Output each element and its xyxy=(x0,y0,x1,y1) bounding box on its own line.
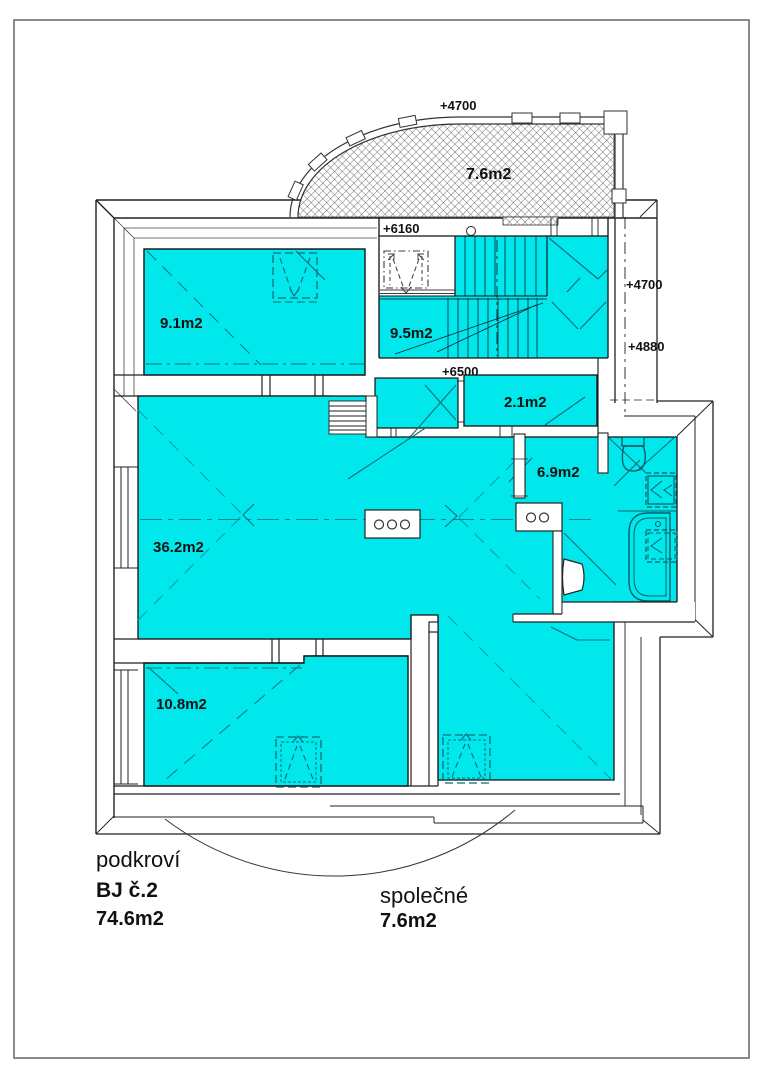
svg-text:+6160: +6160 xyxy=(383,221,420,236)
svg-text:+4700: +4700 xyxy=(626,277,663,292)
svg-text:6.9m2: 6.9m2 xyxy=(537,464,580,481)
svg-text:36.2m2: 36.2m2 xyxy=(153,539,204,556)
svg-text:7.6m2: 7.6m2 xyxy=(380,910,437,932)
svg-text:9.1m2: 9.1m2 xyxy=(160,315,203,332)
svg-text:2.1m2: 2.1m2 xyxy=(504,394,547,411)
svg-text:10.8m2: 10.8m2 xyxy=(156,696,207,713)
svg-text:74.6m2: 74.6m2 xyxy=(96,908,164,930)
svg-text:BJ č.2: BJ č.2 xyxy=(96,879,158,902)
svg-text:+4700: +4700 xyxy=(440,98,477,113)
svg-text:+4880: +4880 xyxy=(628,339,665,354)
svg-text:podkroví: podkroví xyxy=(96,847,180,872)
svg-text:společné: společné xyxy=(380,883,468,908)
svg-text:7.6m2: 7.6m2 xyxy=(466,166,511,183)
svg-text:9.5m2: 9.5m2 xyxy=(390,325,433,342)
